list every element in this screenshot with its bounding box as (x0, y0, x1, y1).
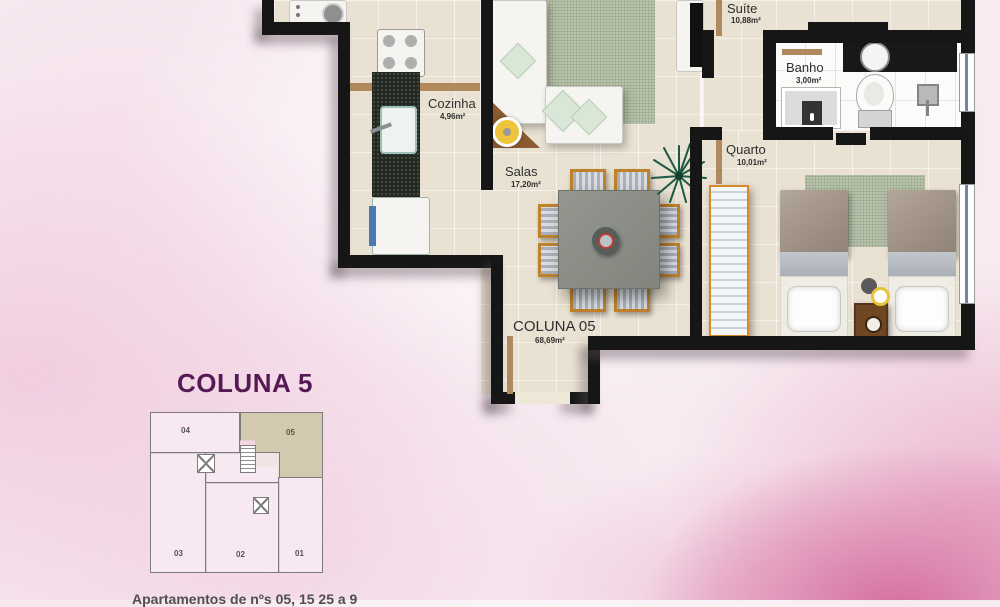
key-plan-unit-label-04: 04 (181, 426, 190, 435)
key-plan-unit-label-05: 05 (286, 428, 295, 437)
key-plan-elevator-icon (197, 454, 215, 473)
caption-apartments: Apartamentos de nºs 05, 15 25 a 9 (132, 591, 357, 607)
key-plan-unit-01 (278, 477, 323, 573)
key-plan: 04 05 03 02 01 (0, 0, 1000, 600)
key-plan-unit-04 (150, 412, 240, 454)
key-plan-unit-label-02: 02 (236, 550, 245, 559)
key-plan-unit-02 (205, 482, 280, 573)
key-plan-elevator-icon (253, 497, 269, 514)
key-plan-unit-label-03: 03 (174, 549, 183, 558)
key-plan-stairs-icon (240, 445, 256, 473)
key-plan-unit-label-01: 01 (295, 549, 304, 558)
